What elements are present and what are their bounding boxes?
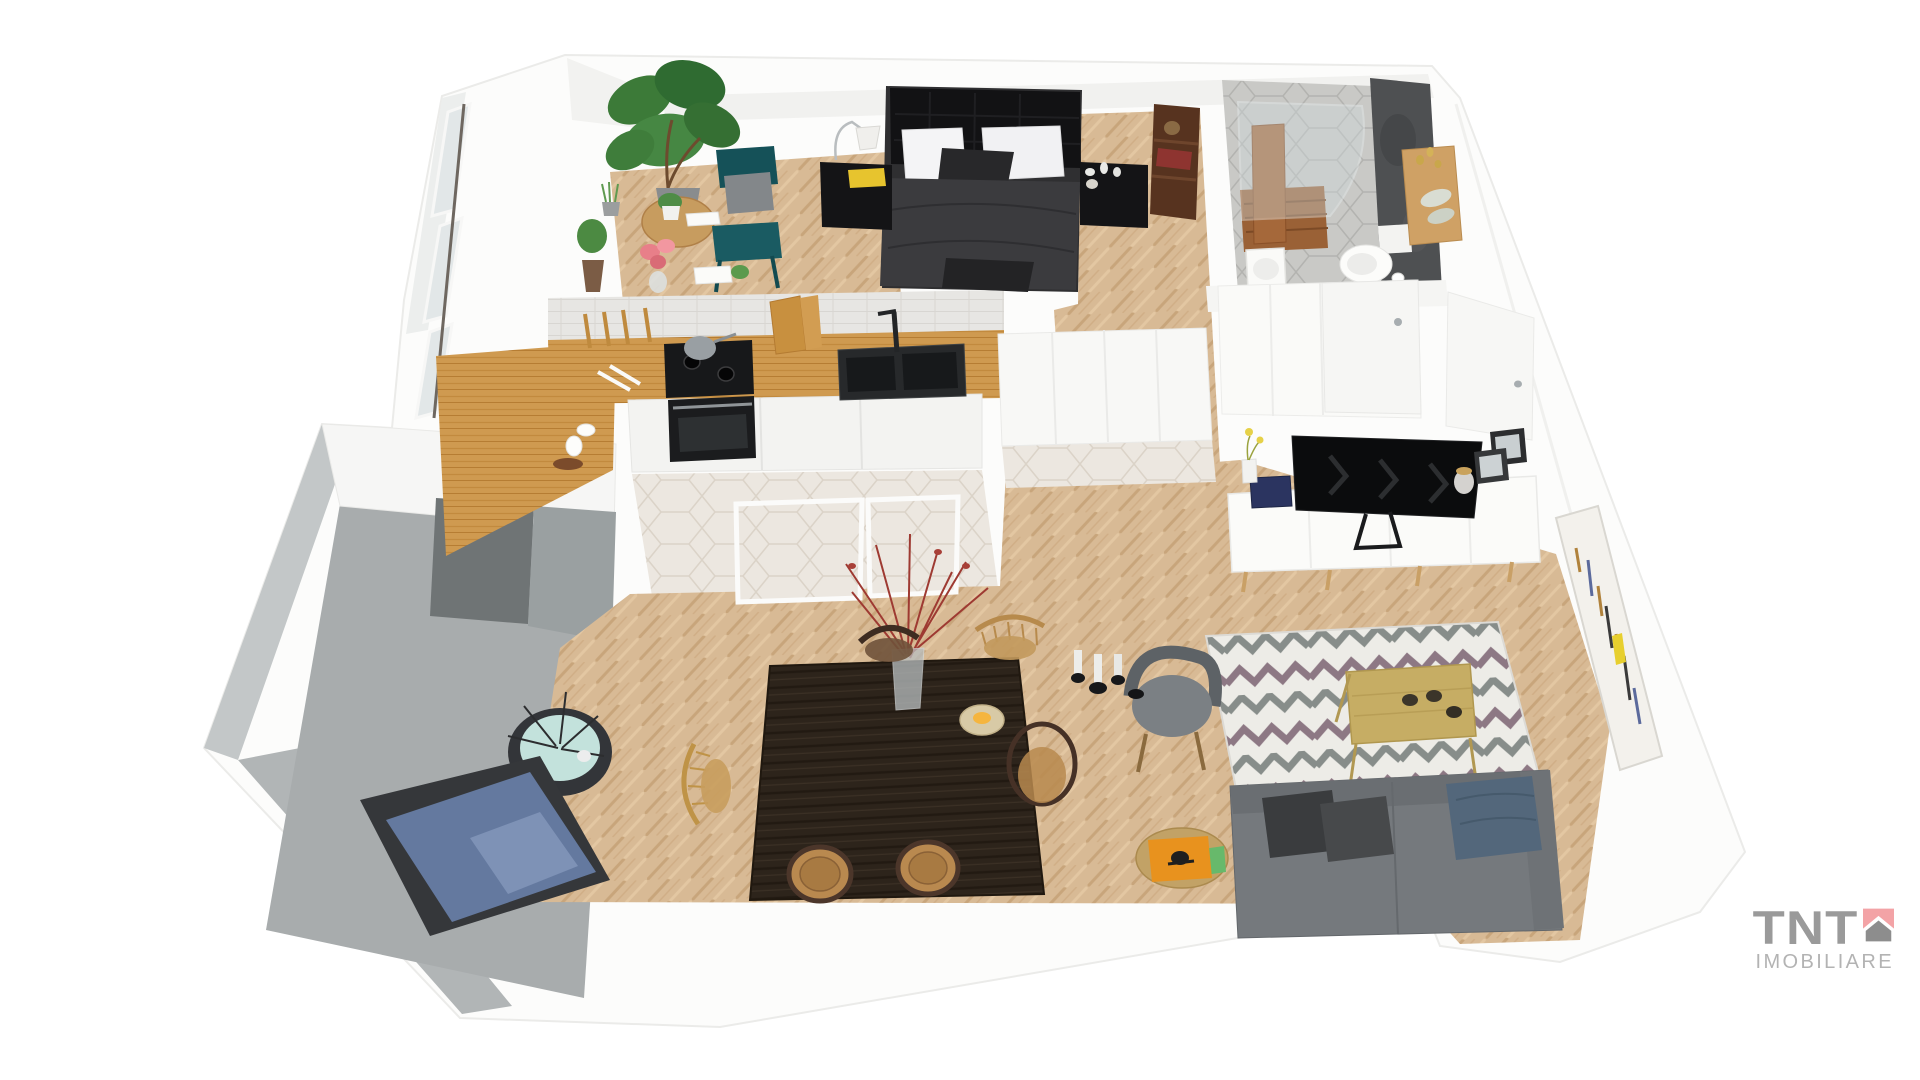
logo-house-icon (1863, 908, 1894, 942)
decor-ball (1086, 179, 1098, 189)
hob-burner-2 (718, 367, 734, 381)
balcony-table-vase (577, 750, 591, 762)
rattan-chair-1-seat (800, 857, 840, 891)
berry-1 (848, 563, 856, 569)
hall-door-handle (1394, 318, 1402, 326)
teal-chair-seat (712, 222, 782, 262)
white-box (694, 266, 732, 284)
rattan-chair-2-seat (909, 852, 947, 884)
dining-chair-tr-seat (984, 636, 1036, 660)
sink-bowl-1 (846, 356, 896, 392)
entry-door-handle (1514, 381, 1522, 388)
dining-chair-left-seat (701, 759, 731, 813)
grass-pot (602, 202, 620, 216)
cutting-board-1 (770, 296, 806, 354)
cooking-pot (684, 336, 716, 360)
glass-partition-2 (868, 497, 958, 596)
bentwood-chair-seat (1018, 747, 1066, 803)
tv-flower-2 (1257, 437, 1264, 444)
entry-door (1446, 292, 1534, 440)
candlestick-3 (1114, 654, 1122, 678)
floorplan-render: TNT IMOBILIARE (0, 0, 1920, 1080)
desk-lamp-shade (856, 126, 880, 150)
pink-flowers-3 (650, 255, 666, 269)
candle-b (1100, 162, 1108, 174)
glass-partition-1 (736, 500, 862, 602)
berry-3 (962, 563, 970, 569)
candle-holder-3 (1111, 675, 1125, 685)
teal-chair-cushion (724, 172, 774, 214)
shelf-wicker-ball (1164, 121, 1180, 135)
side-table-pot (662, 206, 680, 220)
dining-chair-top-seat (865, 638, 913, 662)
candle-holder-1 (1071, 673, 1085, 683)
candlestick-1 (1074, 650, 1082, 676)
logo: TNT IMOBILIARE (1756, 906, 1894, 974)
logo-house-body (1866, 920, 1892, 941)
table-candle-hole-2 (1426, 690, 1442, 702)
side-table-books (686, 212, 720, 226)
sofa-pillow-2 (1320, 796, 1394, 862)
floorplan-canvas (0, 0, 1920, 1080)
succulent (731, 265, 749, 279)
oven-window (678, 414, 748, 452)
tealight-flame (973, 712, 991, 724)
berry-2 (934, 549, 942, 555)
pink-flowers-2 (657, 239, 675, 253)
tv-vase (1242, 459, 1257, 483)
photo-frame-2-photo (1479, 454, 1503, 478)
milk-jug (566, 436, 582, 456)
gold-accessory-1 (1416, 155, 1424, 165)
candlestick-2 (1094, 654, 1102, 686)
bed-foot-throw (942, 258, 1034, 292)
wooden-bowl (553, 458, 583, 470)
logo-imobiliare-text: IMOBILIARE (1756, 951, 1894, 974)
table-candle-hole-1 (1402, 694, 1418, 706)
sink-faucet (894, 312, 897, 352)
yellow-book (848, 168, 886, 188)
logo-row: TNT (1764, 906, 1894, 950)
hall-hex-strip (1002, 440, 1216, 488)
gold-accessory-2 (1427, 147, 1434, 157)
gold-accessory-3 (1435, 160, 1442, 168)
candle-holder-2 (1089, 682, 1107, 694)
armchair-seat (1132, 675, 1212, 737)
herb-plant (577, 219, 607, 253)
table-candle-hole-3 (1446, 706, 1462, 718)
logo-tnt-text: TNT (1752, 906, 1858, 950)
candle-a (1085, 168, 1095, 176)
toilet-seat (1347, 253, 1377, 275)
flower-vase (649, 271, 667, 293)
tv-flower-1 (1245, 428, 1253, 436)
sink-bowl-2 (902, 352, 958, 390)
coffee-cup (577, 424, 595, 436)
candle-c (1113, 167, 1121, 177)
candle-holder-4 (1128, 689, 1144, 699)
hall-door (1322, 280, 1421, 414)
tv (1292, 436, 1482, 518)
bath-sink-basin (1253, 258, 1279, 280)
decor-jar-lid (1456, 467, 1472, 475)
